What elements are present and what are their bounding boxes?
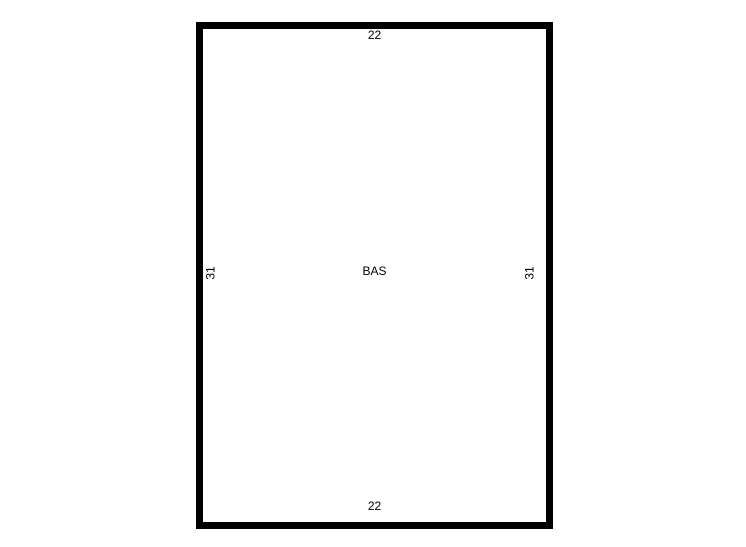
dimension-label-left: 31 bbox=[205, 266, 218, 279]
dimension-label-right: 31 bbox=[524, 266, 537, 279]
sketch-canvas: 22 22 31 31 BAS bbox=[0, 0, 746, 547]
dimension-label-bottom: 22 bbox=[196, 500, 553, 513]
area-outline bbox=[196, 22, 553, 529]
dimension-label-top: 22 bbox=[196, 29, 553, 42]
